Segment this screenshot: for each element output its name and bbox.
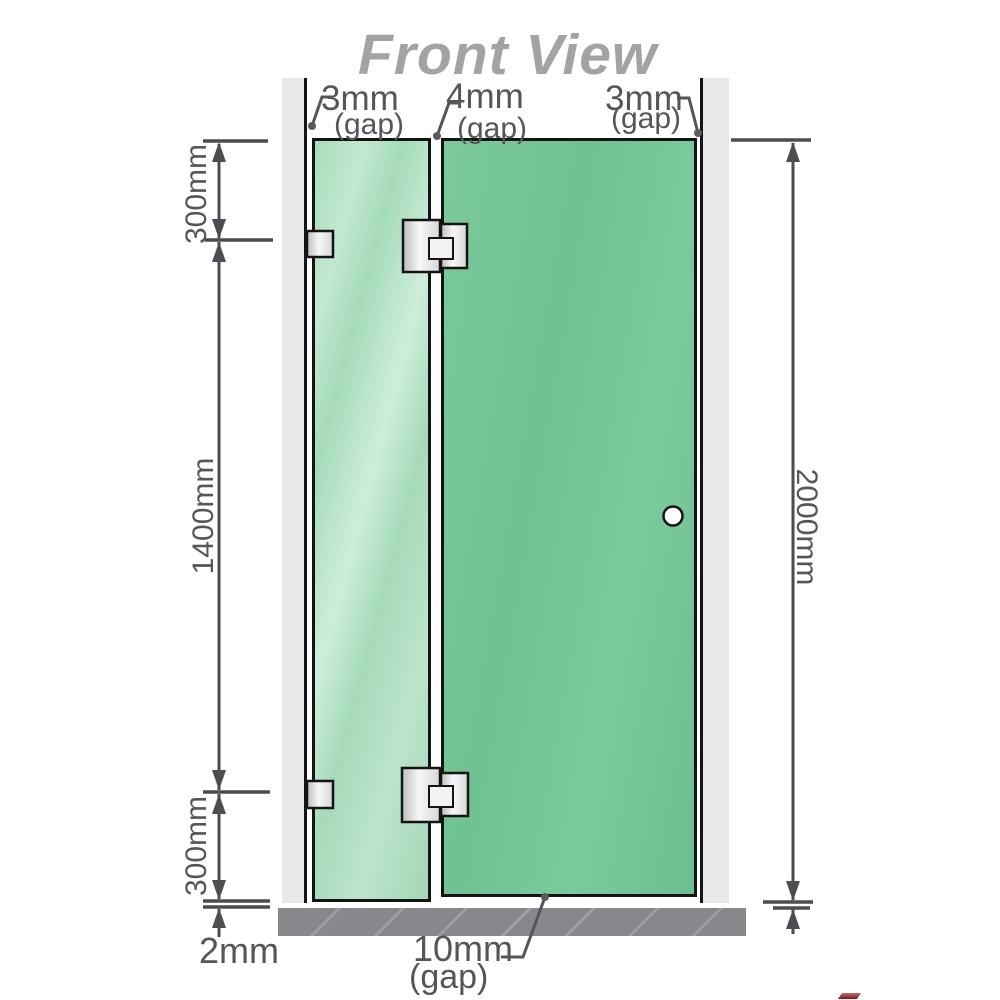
dim-label-2mm: 2mm <box>199 933 279 969</box>
right-wall <box>703 78 729 903</box>
gap-caption-bottom: (gap) <box>409 960 488 994</box>
dim-label-300-top: 300mm <box>182 124 212 264</box>
dim-label-1400: 1400mm <box>189 446 219 586</box>
dim-label-300-bottom: 300mm <box>182 776 212 916</box>
fixed-glass-panel <box>312 138 431 902</box>
gap-caption-top-left: (gap) <box>334 110 404 140</box>
front-view-diagram: Front View <box>0 0 1000 1000</box>
gap-caption-top-middle: (gap) <box>457 114 527 144</box>
watermark-fragment <box>838 993 861 999</box>
gap-label-top-middle: 4mm <box>446 79 524 114</box>
door-glass-panel <box>441 138 697 897</box>
dim-label-2000: 2000mm <box>791 457 821 597</box>
gap-caption-top-right: (gap) <box>611 104 681 134</box>
left-wall <box>282 78 304 903</box>
